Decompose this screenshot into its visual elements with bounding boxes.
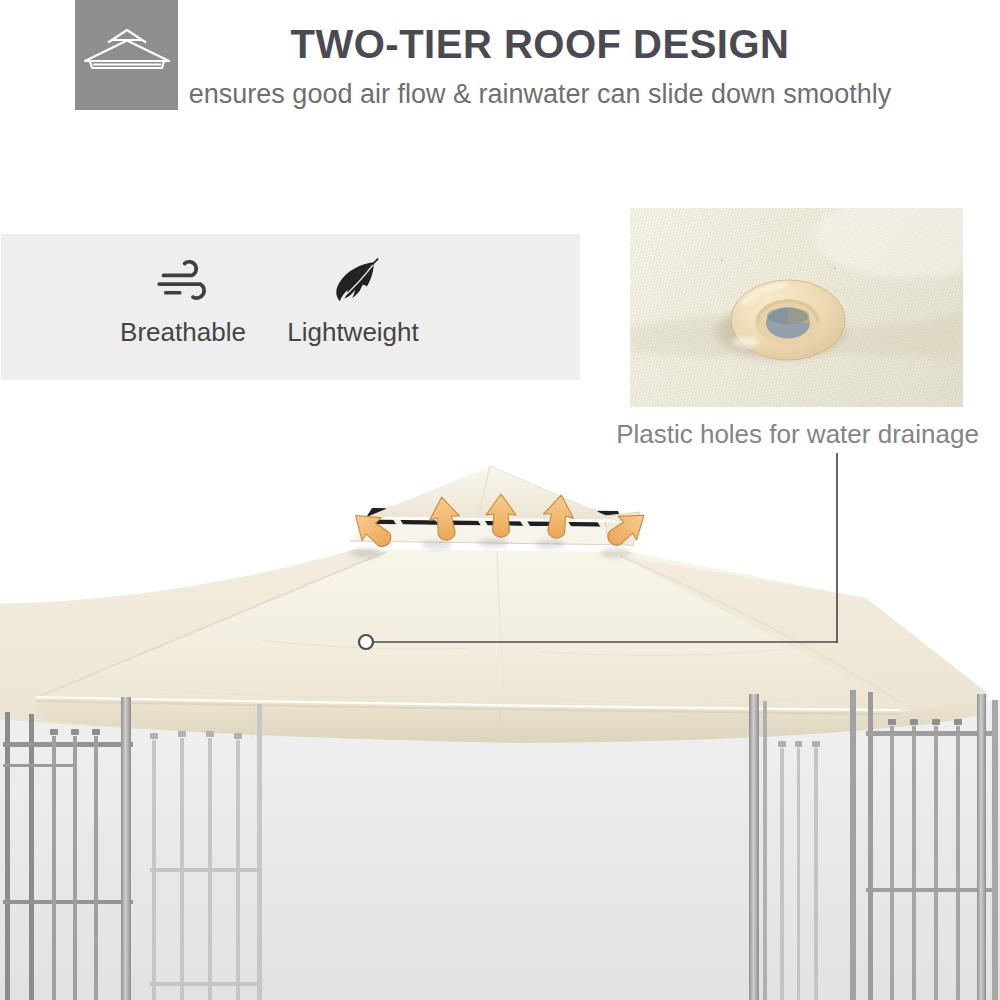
page-title: TWO-TIER ROOF DESIGN — [230, 22, 850, 67]
gazebo-illustration — [0, 440, 1000, 1000]
feature-box: Breathable Lightweight — [1, 234, 580, 380]
wind-icon — [98, 254, 268, 312]
feature-breathable: Breathable — [98, 254, 268, 348]
feature-lightweight: Lightweight — [268, 254, 438, 348]
feature-label: Lightweight — [268, 317, 438, 348]
page-subtitle: ensures good air flow & rainwater can sl… — [105, 79, 975, 110]
feature-label: Breathable — [98, 317, 268, 348]
drainage-grommet — [716, 259, 845, 360]
drainage-grommet-inset-photo — [630, 208, 963, 407]
callout-anchor-dot — [359, 635, 373, 649]
two-tier-roof-icon — [79, 23, 175, 87]
canopy-lower-tier — [0, 549, 988, 743]
feather-icon — [268, 254, 438, 312]
